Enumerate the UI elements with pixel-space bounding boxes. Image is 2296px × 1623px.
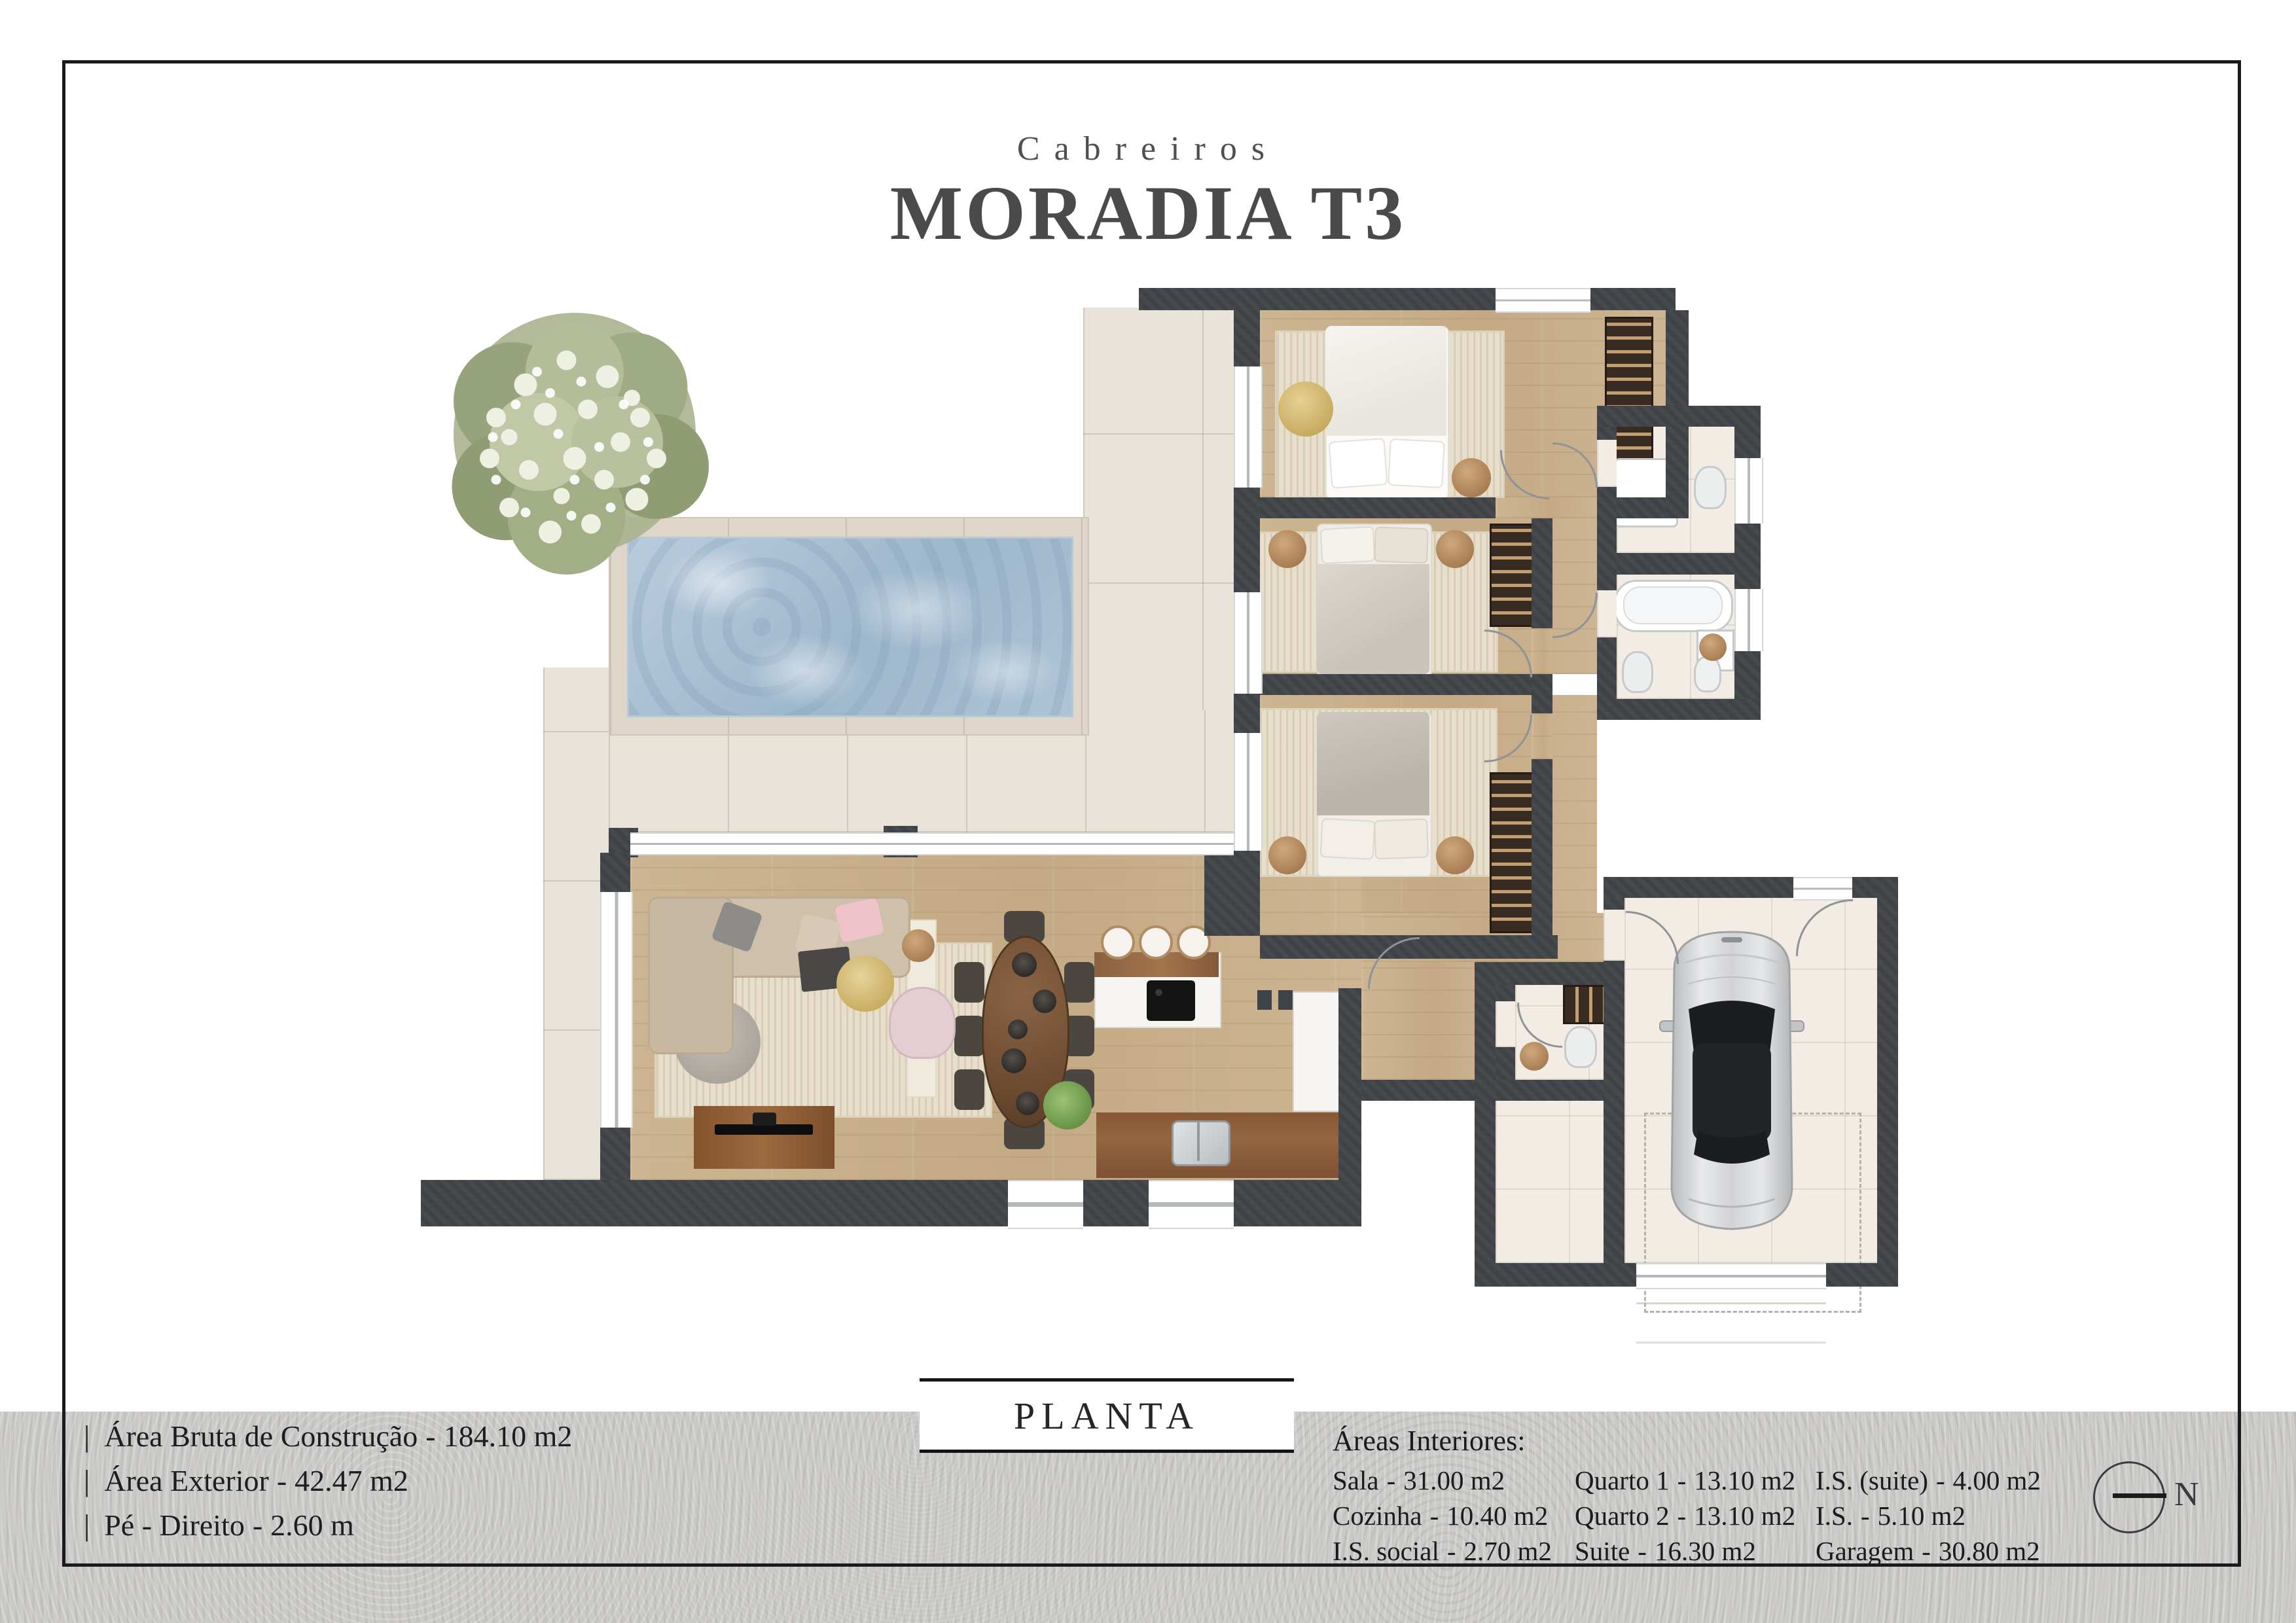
dining-chair (954, 1069, 984, 1110)
plate (1001, 1048, 1026, 1073)
door-gap (1532, 713, 1552, 759)
pillow (1388, 438, 1445, 488)
tv (715, 1124, 813, 1135)
sink-divider (1197, 1122, 1200, 1161)
kitchen-cabinet (1293, 991, 1340, 1112)
sliding-door (630, 832, 1234, 855)
wash-basin (1699, 633, 1727, 661)
spec-value: 42.47 m2 (295, 1464, 408, 1497)
pillow (1374, 819, 1429, 860)
wardrobe (1490, 772, 1534, 933)
door-gap (1532, 628, 1552, 674)
tv-stand (753, 1113, 776, 1126)
window (1234, 733, 1263, 851)
side-table (1268, 530, 1306, 568)
duvet (1317, 564, 1429, 674)
area-item: Quarto 2-13.10 m2 (1575, 1500, 1795, 1531)
wall (1604, 877, 1898, 898)
car (1655, 924, 1809, 1237)
wall (1139, 288, 1676, 310)
wall-pier (600, 1128, 630, 1180)
garage-door-gap (1636, 1263, 1826, 1289)
entry-door-gap (1793, 877, 1852, 901)
column (1257, 990, 1272, 1010)
wall (421, 1180, 1008, 1226)
plan-label: PLANTA (1014, 1394, 1200, 1438)
floor-plan-poster: Cabreiros MORADIA T3 (0, 0, 2296, 1623)
kitchen-sink (1172, 1120, 1230, 1166)
north-label: N (2174, 1475, 2199, 1514)
closet (1563, 985, 1606, 1024)
window (1234, 592, 1263, 694)
area-item: Cozinha-10.40 m2 (1333, 1500, 1548, 1531)
plan-label-box: PLANTA (920, 1378, 1294, 1453)
dining-chair (1064, 962, 1094, 1003)
wall (1734, 406, 1761, 720)
duvet (1325, 326, 1446, 436)
plate (1008, 1020, 1028, 1039)
plate (1012, 952, 1037, 977)
areas-heading: Áreas Interiores: (1333, 1424, 1525, 1457)
wall (1496, 962, 1604, 985)
area-item: Suite-16.30 m2 (1575, 1535, 1756, 1567)
area-item: I.S. social-2.70 m2 (1333, 1535, 1552, 1567)
wall (1475, 962, 1496, 1287)
dining-chair (954, 962, 984, 1003)
pipe-mark: | (84, 1508, 90, 1542)
side-table (1436, 530, 1474, 568)
area-item: Quarto 1-13.10 m2 (1575, 1465, 1795, 1496)
side-table (1436, 836, 1474, 874)
driveway-line (1636, 1342, 1826, 1344)
plant-icon (1043, 1081, 1092, 1130)
window (1734, 458, 1763, 524)
suite-door-floor (1496, 497, 1597, 518)
spec-value: 184.10 m2 (444, 1419, 573, 1453)
pipe-mark: | (84, 1419, 90, 1453)
wall (1338, 988, 1361, 1226)
page-title: MORADIA T3 (0, 169, 2296, 258)
bidet (1694, 656, 1721, 692)
spec-line: |Área Exterior-42.47 m2 (84, 1463, 408, 1498)
bathtub-inner (1623, 586, 1723, 624)
wall (1475, 1263, 1624, 1287)
door-gap (1496, 1001, 1515, 1047)
wall (1083, 1180, 1149, 1226)
spec-line: |Pé - Direito-2.60 m (84, 1508, 354, 1543)
tree-icon (411, 287, 738, 601)
door-gap (1604, 910, 1624, 961)
side-table-small (902, 929, 935, 962)
spec-label: Pé - Direito (104, 1508, 245, 1542)
dining-chair (954, 1016, 984, 1056)
window (1496, 288, 1590, 313)
wall (1597, 699, 1761, 720)
north-needle-icon (2113, 1493, 2166, 1498)
pillow (1374, 527, 1429, 564)
patio-tiles (1083, 308, 1234, 733)
column (1278, 990, 1293, 1010)
window (600, 892, 633, 1128)
area-item: I.S.-5.10 m2 (1816, 1500, 1965, 1531)
wall (1496, 1080, 1604, 1101)
plate (1033, 990, 1056, 1013)
door-gap (1597, 590, 1617, 637)
toilet (1694, 466, 1727, 509)
window (1008, 1180, 1083, 1229)
door-gap (1597, 440, 1617, 487)
side-table (1268, 836, 1306, 874)
pillow (1319, 818, 1375, 860)
toilet (1564, 1026, 1597, 1068)
pipe-mark: | (84, 1464, 90, 1497)
duvet (1317, 712, 1429, 815)
wardrobe (1490, 524, 1534, 627)
armchair (889, 987, 956, 1059)
pillow (1329, 438, 1388, 489)
wall (1260, 497, 1496, 518)
window (1734, 589, 1763, 651)
spec-value: 2.60 m (270, 1508, 354, 1542)
coffee-table-gold (836, 955, 894, 1012)
area-item: I.S. (suite)-4.00 m2 (1816, 1465, 2041, 1496)
wall (1877, 877, 1898, 1287)
side-table (1452, 458, 1491, 497)
plate (1016, 1092, 1039, 1115)
wash-basin (1520, 1042, 1549, 1071)
spec-label: Área Exterior (104, 1464, 269, 1497)
bar-stool (1101, 925, 1135, 959)
wall (1617, 553, 1734, 575)
bar-stool (1139, 925, 1173, 959)
area-item: Garagem-30.80 m2 (1816, 1535, 2040, 1567)
spec-line: |Área Bruta de Construção-184.10 m2 (84, 1419, 572, 1454)
area-item: Sala-31.00 m2 (1333, 1465, 1505, 1496)
window (1234, 366, 1263, 488)
spec-label: Área Bruta de Construção (104, 1419, 418, 1453)
project-name: Cabreiros (0, 130, 2296, 168)
pillow (1320, 526, 1376, 564)
cooktop (1147, 980, 1195, 1021)
wall-pier (600, 853, 630, 892)
toilet (1622, 651, 1653, 693)
window (1149, 1180, 1234, 1229)
pendant-lamp-icon (1278, 382, 1333, 437)
